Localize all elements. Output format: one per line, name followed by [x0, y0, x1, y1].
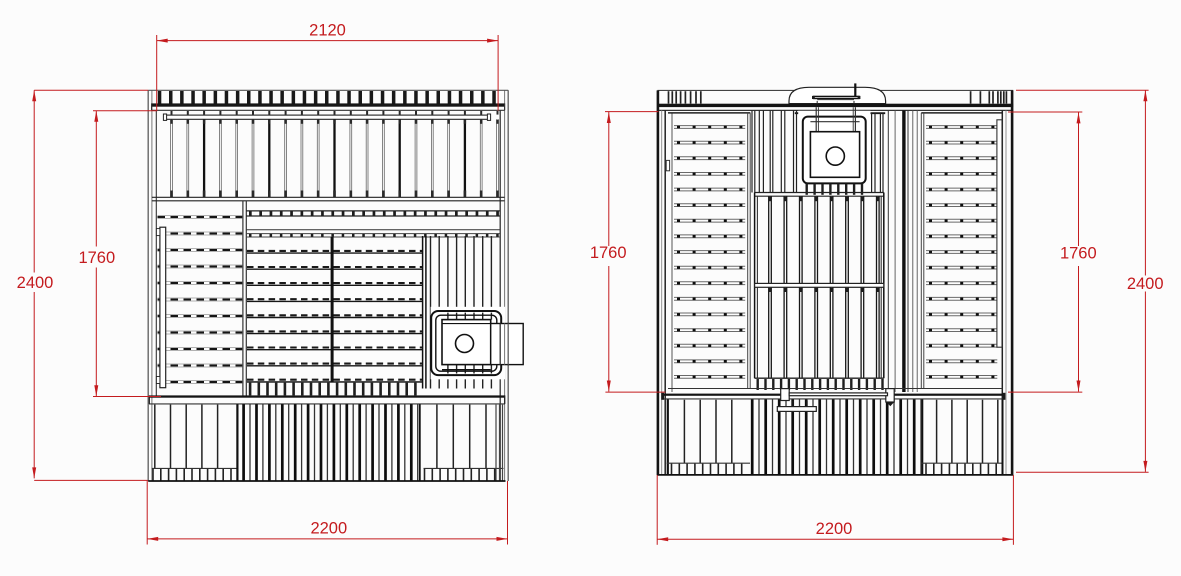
svg-text:1760: 1760: [1060, 245, 1097, 263]
svg-text:1760: 1760: [78, 249, 115, 267]
svg-text:1760: 1760: [590, 244, 627, 262]
svg-text:2200: 2200: [816, 520, 853, 538]
svg-text:2400: 2400: [1127, 275, 1164, 293]
svg-text:2400: 2400: [17, 274, 54, 292]
svg-text:2200: 2200: [310, 520, 347, 538]
svg-text:2120: 2120: [309, 22, 346, 40]
